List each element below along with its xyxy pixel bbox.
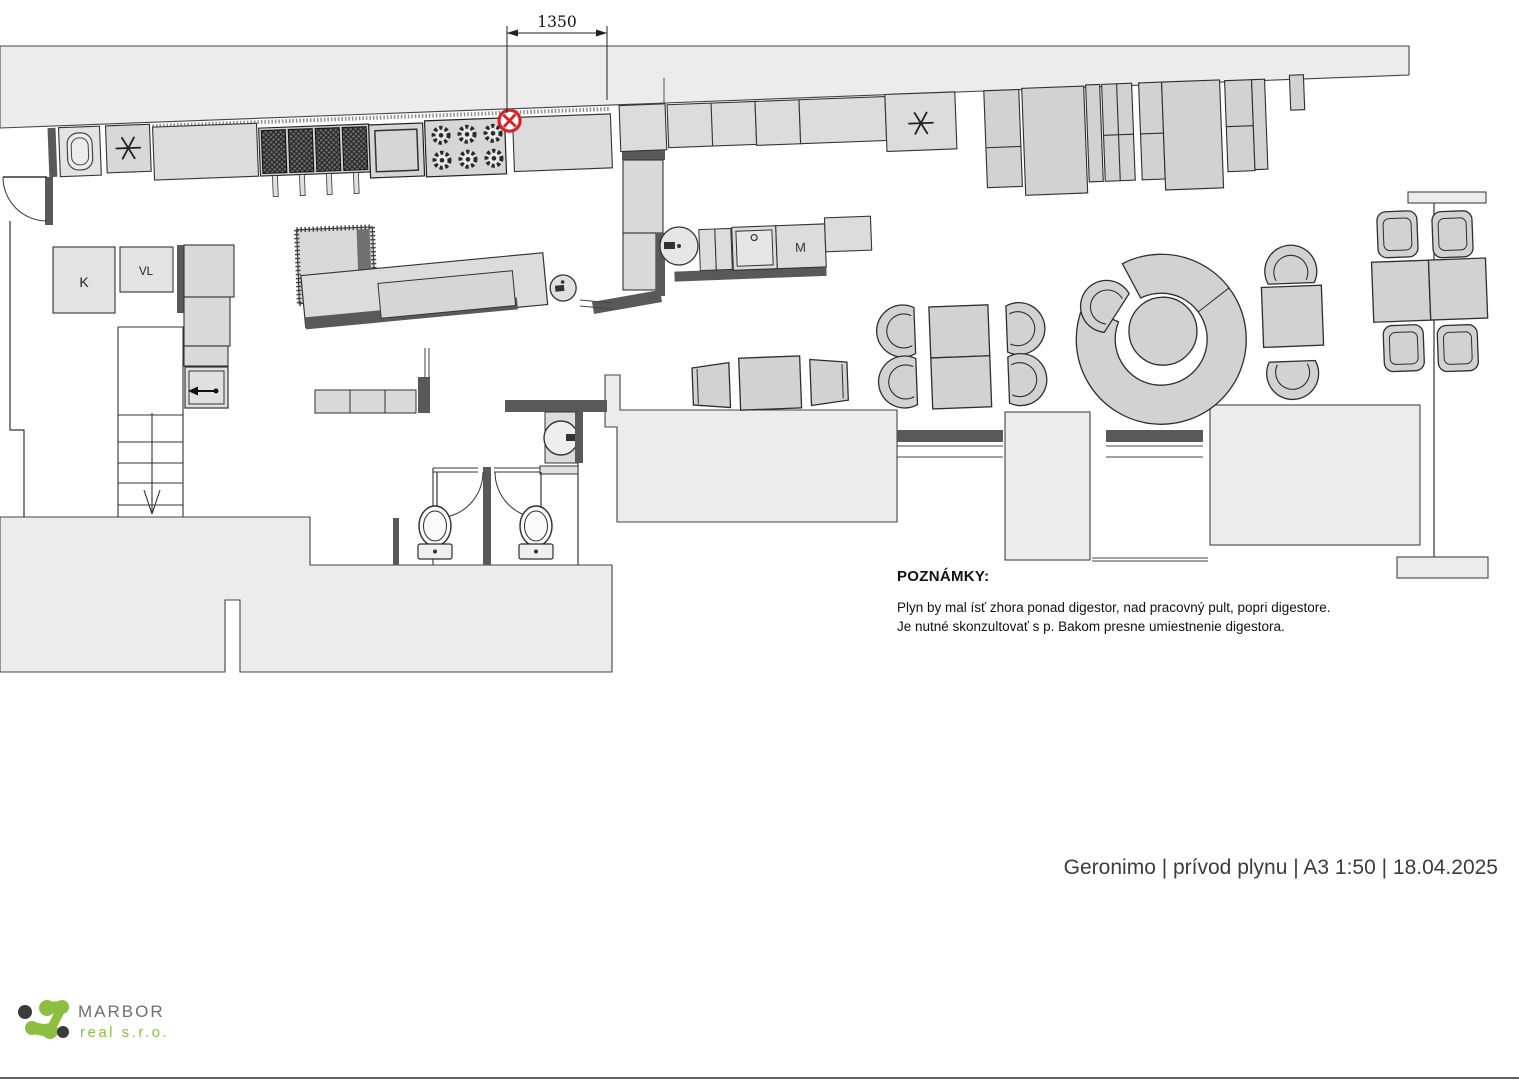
table-group-banquette-side <box>1260 244 1326 400</box>
hand-basin <box>660 227 698 265</box>
tub-chair <box>1008 353 1048 406</box>
oven-unit <box>369 123 425 178</box>
tub-chair <box>1264 244 1317 284</box>
room-label-k: K <box>79 274 89 290</box>
notes-block: POZNÁMKY: Plyn by mal ísť zhora ponad di… <box>897 568 1331 636</box>
armchair <box>1377 211 1419 258</box>
door-arc-entrance <box>3 177 47 221</box>
logo-name: MARBOR <box>78 1002 165 1021</box>
round-table <box>1128 296 1199 367</box>
toilet-left <box>418 506 452 559</box>
bar-equipment <box>984 75 1308 197</box>
drawing-sheet: K VL <box>0 0 1519 1080</box>
mass-below-dining-mid <box>1005 412 1090 560</box>
stairs <box>118 327 183 517</box>
notes-line: Plyn by mal ísť zhora ponad digestor, na… <box>897 598 1331 617</box>
tub-chair <box>878 356 918 409</box>
counter <box>153 123 259 180</box>
dimension-label: 1350 <box>537 13 576 31</box>
armchair <box>1437 324 1479 371</box>
mass-bottom-left <box>0 517 612 672</box>
toilet-right <box>519 506 553 559</box>
logo-subtitle: real s.r.o. <box>80 1024 169 1041</box>
counter-sink <box>732 226 778 271</box>
mass-right-bottom-bar <box>1397 557 1488 578</box>
marbor-logo-icon: MARBOR real s.r.o. <box>0 995 240 1055</box>
gas-connection-point <box>499 110 521 132</box>
toilet-rooms <box>315 390 607 565</box>
table-group-four <box>876 300 1048 411</box>
room-label-m: M <box>795 240 806 255</box>
mass-right-top-bar <box>1408 192 1486 203</box>
gas-stove-six-burners <box>425 118 507 177</box>
counter <box>512 114 612 172</box>
vent-unit-right <box>885 92 957 152</box>
fryer-block <box>259 124 372 197</box>
equipment-arrow-box <box>185 367 228 408</box>
tub-chair <box>876 305 916 358</box>
table-group-window <box>1370 208 1490 374</box>
vent-unit-left <box>105 124 151 173</box>
tub-chair <box>1266 360 1319 400</box>
title-block: Geronimo | prívod plynu | A3 1:50 | 18.0… <box>1064 856 1498 880</box>
curved-banquette-group <box>1068 251 1249 427</box>
wash-basin <box>544 421 578 455</box>
armchair <box>1432 210 1474 257</box>
sink-unit <box>59 126 102 177</box>
prep-counter-m: M <box>673 216 873 281</box>
company-logo: MARBOR real s.r.o. <box>0 995 240 1060</box>
floor-plan: K VL <box>0 0 1519 1080</box>
tub-chair <box>1006 302 1046 355</box>
armchair <box>1383 324 1425 371</box>
notes-heading: POZNÁMKY: <box>897 568 1331 585</box>
room-label-vl: VL <box>139 266 154 278</box>
mass-below-dining-right <box>1210 405 1420 545</box>
table-group-small <box>692 354 849 412</box>
island-sink <box>549 274 577 302</box>
notes-line: Je nutné skonzultovať s p. Bakom presne … <box>897 617 1331 636</box>
